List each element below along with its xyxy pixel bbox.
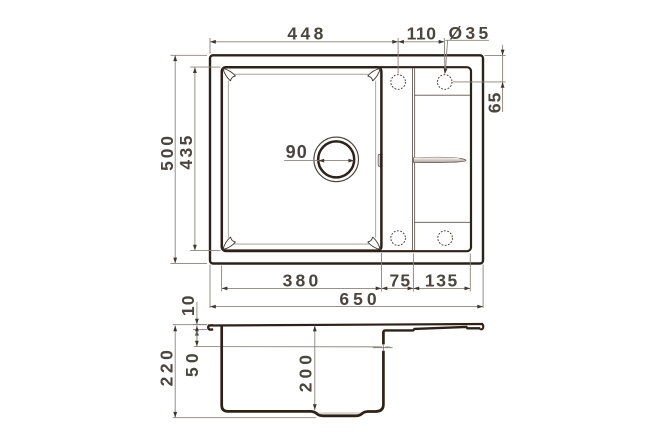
svg-text:Ø35: Ø35 [449, 23, 492, 43]
svg-text:50: 50 [182, 349, 202, 377]
svg-text:10: 10 [178, 294, 198, 316]
svg-text:135: 135 [425, 270, 459, 290]
svg-text:220: 220 [157, 347, 177, 387]
svg-text:448: 448 [287, 24, 326, 44]
svg-text:435: 435 [176, 133, 196, 169]
svg-text:200: 200 [296, 351, 316, 392]
svg-text:90: 90 [286, 142, 308, 162]
svg-text:380: 380 [283, 270, 322, 290]
svg-text:650: 650 [339, 289, 380, 309]
svg-text:75: 75 [389, 270, 411, 290]
svg-text:500: 500 [157, 133, 177, 171]
svg-text:65: 65 [484, 92, 504, 113]
svg-text:110: 110 [407, 24, 437, 44]
